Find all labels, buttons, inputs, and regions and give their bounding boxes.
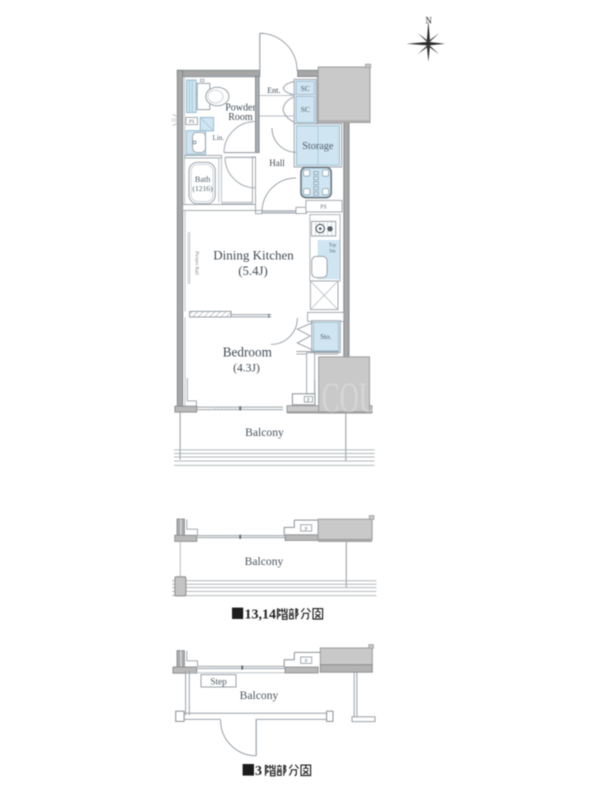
- svg-text:COU: COU: [322, 374, 378, 422]
- svg-text:SC: SC: [301, 84, 310, 93]
- svg-text:Balcony: Balcony: [245, 426, 284, 439]
- svg-text:3: 3: [255, 764, 262, 779]
- svg-text:P: P: [305, 527, 308, 532]
- svg-text:Ent.: Ent.: [267, 86, 280, 95]
- svg-text:(5.4J): (5.4J): [238, 264, 268, 278]
- svg-text:Step: Step: [210, 677, 227, 687]
- svg-text:Storage: Storage: [302, 141, 334, 152]
- svg-text:Bedroom: Bedroom: [223, 344, 273, 359]
- svg-text:Room: Room: [228, 112, 253, 123]
- svg-text:N: N: [425, 16, 432, 26]
- svg-text:Picture Rail: Picture Rail: [194, 251, 199, 275]
- svg-text:Lin.: Lin.: [213, 134, 225, 142]
- svg-text:Dining Kitchen: Dining Kitchen: [213, 247, 294, 262]
- svg-text:P: P: [307, 399, 310, 404]
- svg-text:Balcony: Balcony: [245, 555, 284, 568]
- svg-text:Stn: Stn: [329, 249, 336, 254]
- svg-text:P: P: [305, 660, 308, 665]
- svg-text:Sto.: Sto.: [320, 333, 331, 341]
- svg-text:(1216): (1216): [192, 184, 213, 193]
- svg-text:Hall: Hall: [269, 158, 285, 168]
- svg-text:PS: PS: [320, 205, 326, 211]
- svg-text:Top: Top: [329, 244, 337, 249]
- svg-text:SC: SC: [301, 105, 310, 114]
- svg-text:Balcony: Balcony: [240, 689, 279, 702]
- svg-text:PS: PS: [189, 120, 195, 125]
- svg-text:13,14: 13,14: [245, 608, 277, 623]
- svg-text:Bath: Bath: [195, 175, 210, 184]
- svg-text:(4.3J): (4.3J): [233, 362, 260, 375]
